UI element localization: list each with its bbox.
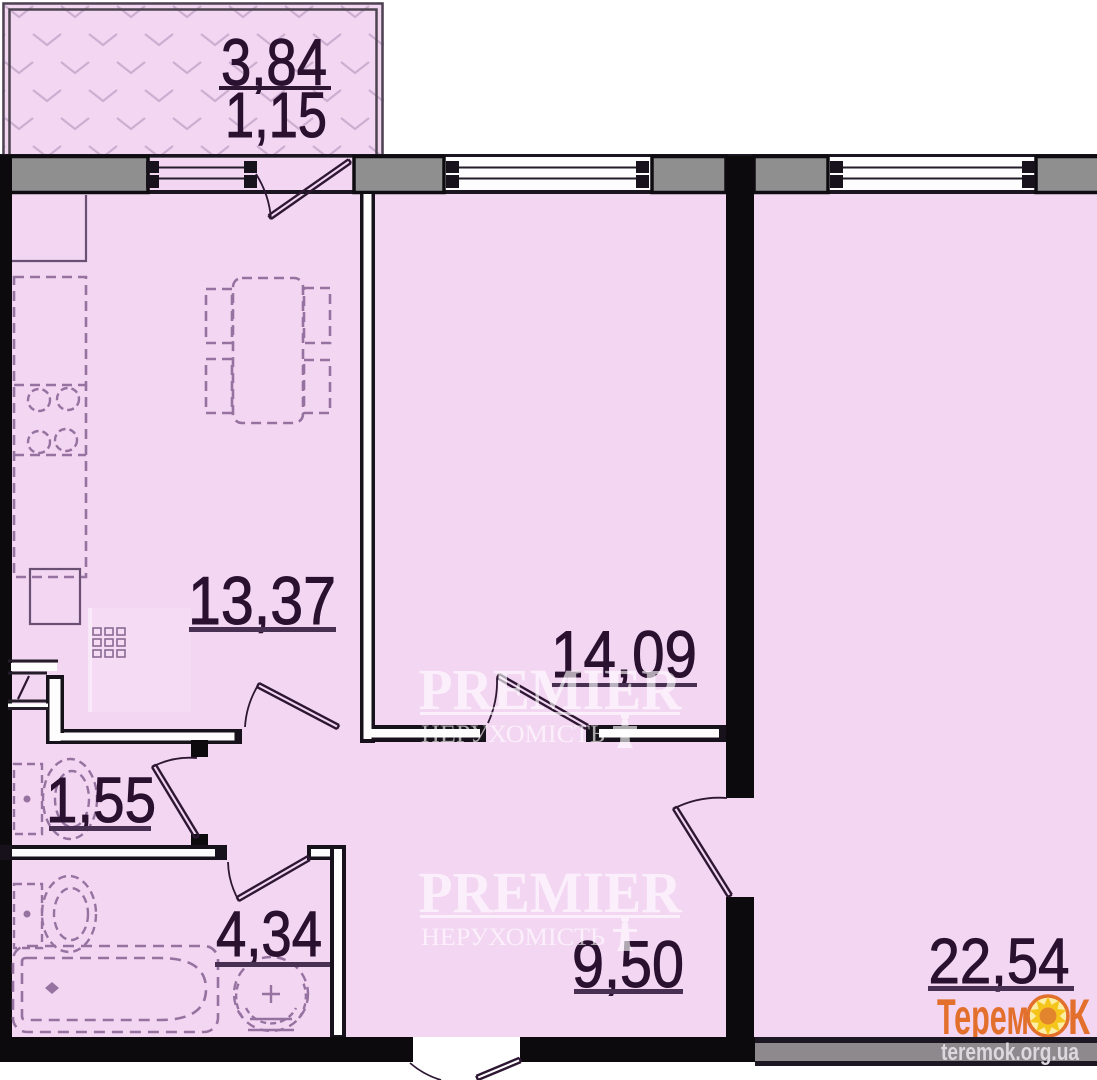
svg-text:К: К — [1068, 989, 1090, 1045]
svg-text:1,55: 1,55 — [46, 764, 156, 836]
svg-text:НЕРУХОМІСТЬ: НЕРУХОМІСТЬ — [421, 924, 605, 951]
svg-text:1,15: 1,15 — [225, 79, 327, 151]
svg-text:Терем: Терем — [937, 989, 1029, 1045]
svg-text:4,34: 4,34 — [216, 898, 322, 970]
svg-text:teremok.org.ua: teremok.org.ua — [941, 1039, 1080, 1066]
svg-text:НЕРУХОМІСТЬ: НЕРУХОМІСТЬ — [421, 721, 605, 748]
